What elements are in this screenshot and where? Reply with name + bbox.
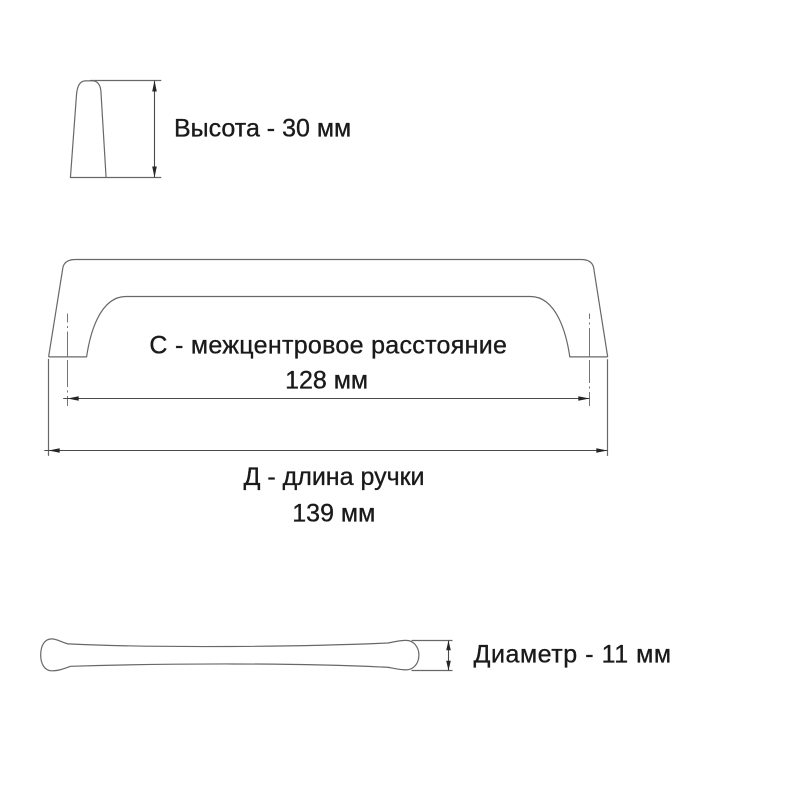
svg-text:139 мм: 139 мм <box>292 500 375 528</box>
svg-text:С - межцентровое расстояние: С - межцентровое расстояние <box>149 331 507 359</box>
svg-text:Высота - 30 мм: Высота - 30 мм <box>174 115 351 143</box>
svg-text:Диаметр - 11 мм: Диаметр - 11 мм <box>474 640 672 668</box>
svg-text:Д - длина ручки: Д - длина ручки <box>244 463 425 491</box>
svg-text:128 мм: 128 мм <box>285 366 368 394</box>
